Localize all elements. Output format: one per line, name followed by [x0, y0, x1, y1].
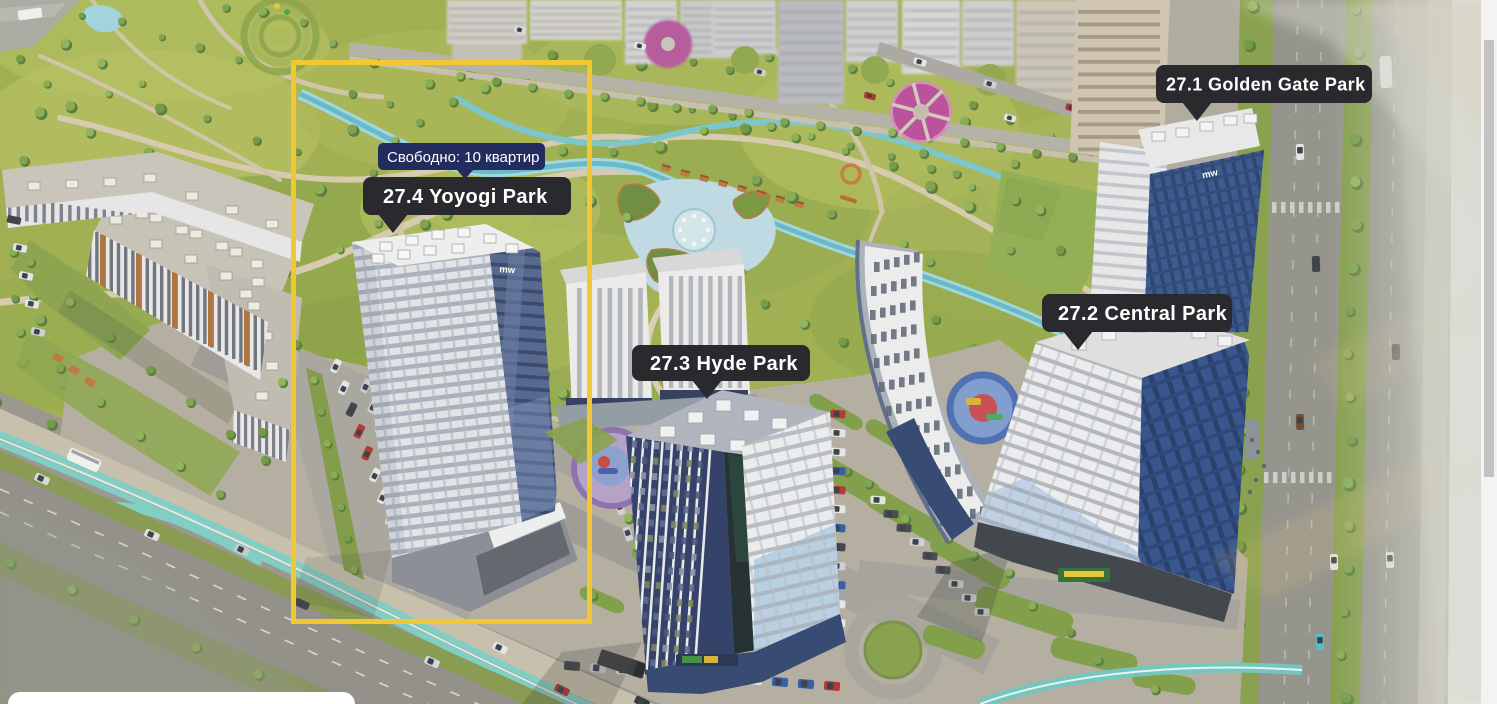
svg-text:Свободно: 10 квартир: Свободно: 10 квартир	[387, 149, 539, 166]
svg-text:27.1 Golden Gate Park: 27.1 Golden Gate Park	[1166, 74, 1366, 94]
svg-text:27.4 Yoyogi Park: 27.4 Yoyogi Park	[383, 186, 548, 208]
svg-text:27.2 Central Park: 27.2 Central Park	[1058, 303, 1228, 325]
svg-text:27.3 Hyde Park: 27.3 Hyde Park	[650, 353, 798, 375]
